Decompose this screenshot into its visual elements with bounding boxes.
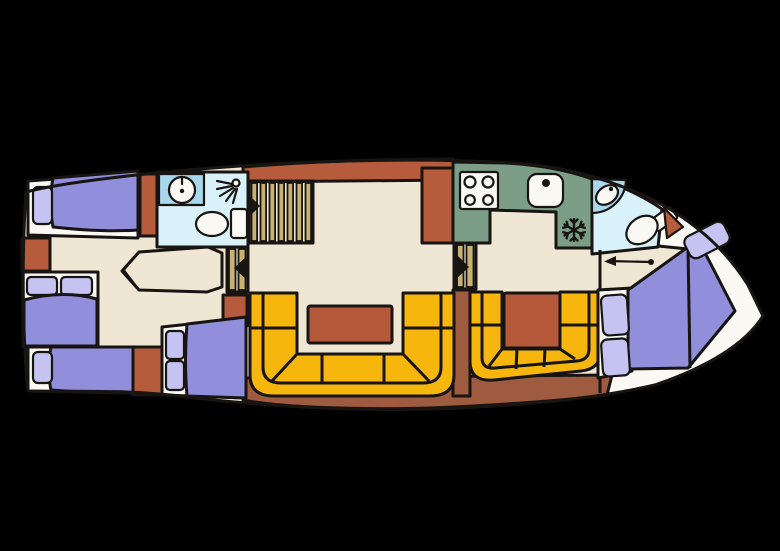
stern-cabinet xyxy=(22,238,50,271)
berth-mattress xyxy=(24,295,97,346)
pillow xyxy=(33,187,52,224)
saloon-dinette xyxy=(250,293,454,396)
pillow xyxy=(33,352,52,383)
dressing-area xyxy=(122,247,222,292)
aft-bathroom xyxy=(157,172,248,247)
toilet-icon xyxy=(196,209,247,238)
dinette-table xyxy=(504,293,560,348)
pillow xyxy=(601,338,631,377)
boat-floor-plan xyxy=(0,0,780,551)
mattress-split xyxy=(688,247,690,368)
stove-icon xyxy=(460,172,498,209)
pillow xyxy=(166,331,184,359)
berth-mattress xyxy=(49,347,133,393)
aft-wardrobe-bottom xyxy=(132,347,162,395)
washbasin-icon xyxy=(169,177,195,203)
aft-wardrobe-top xyxy=(140,174,157,236)
galley-sink-icon xyxy=(528,174,563,207)
saloon-table xyxy=(308,306,392,343)
aft-berth-double xyxy=(23,272,98,347)
second-dinette xyxy=(470,292,601,380)
berth-mattress xyxy=(186,317,247,398)
aft-berth-lower xyxy=(28,347,133,393)
saloon-sideboard xyxy=(422,168,453,243)
pillow xyxy=(166,361,184,390)
pillow xyxy=(601,294,630,336)
between-dinette-base xyxy=(453,290,470,396)
pillow xyxy=(61,277,92,295)
dressing-area-outline xyxy=(122,247,222,292)
pillow xyxy=(27,277,57,295)
floor-plan-canvas xyxy=(0,0,780,551)
aft-berth-starboard xyxy=(162,317,246,398)
